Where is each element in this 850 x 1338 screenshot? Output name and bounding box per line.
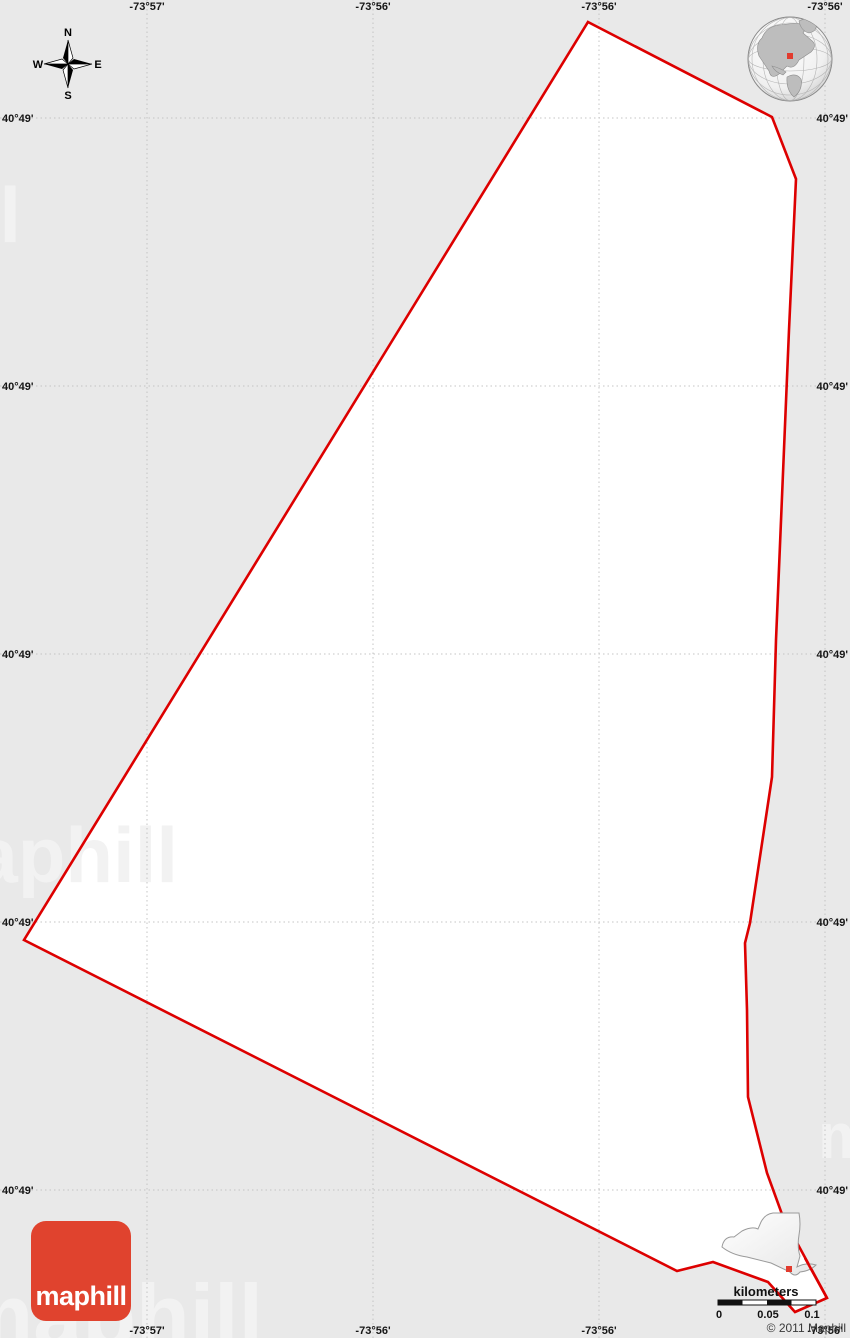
globe-location-marker (787, 53, 793, 59)
compass-west-label: W (33, 59, 44, 71)
watermark-text: maphill (818, 1100, 850, 1172)
longitude-label-bottom: -73°56' (355, 1325, 391, 1337)
scale-bar-segment (767, 1300, 792, 1305)
compass-south-label: S (64, 90, 71, 102)
latitude-label-right: 40°49' (817, 381, 849, 393)
watermark-text: maphill (0, 811, 178, 899)
latitude-label-left: 40°49' (2, 649, 34, 661)
scale-tick: 0.1 (804, 1309, 819, 1321)
watermark-text: maphill (0, 171, 21, 259)
compass-rose: N S W E (33, 27, 102, 102)
region-area-fill (24, 22, 827, 1312)
copyright-text: © 2011 Maphill (767, 1321, 846, 1335)
latitude-label-left: 40°49' (2, 1185, 34, 1197)
latitude-label-right: 40°49' (817, 917, 849, 929)
longitude-label-top: -73°56' (807, 1, 843, 13)
longitude-label-bottom: -73°56' (581, 1325, 617, 1337)
latitude-label-right: 40°49' (817, 649, 849, 661)
compass-east-label: E (94, 59, 101, 71)
inset-location-marker (786, 1266, 792, 1272)
latitude-label-right: 40°49' (817, 1185, 849, 1197)
locator-globe (748, 17, 832, 101)
scale-bar-segment (718, 1300, 743, 1305)
map-canvas: maphill maphill maphill maphill kilomete… (0, 0, 850, 1338)
scale-tick: 0.05 (757, 1309, 778, 1321)
longitude-label-top: -73°57' (129, 1, 165, 13)
latitude-label-left: 40°49' (2, 917, 34, 929)
latitude-label-right: 40°49' (817, 113, 849, 125)
maphill-logo-text: maphill (35, 1281, 126, 1312)
longitude-label-top: -73°56' (581, 1, 617, 13)
longitude-label-bottom: -73°57' (129, 1325, 165, 1337)
compass-north-label: N (64, 27, 72, 39)
latitude-label-left: 40°49' (2, 113, 34, 125)
maphill-logo[interactable]: maphill (31, 1221, 131, 1321)
longitude-label-top: -73°56' (355, 1, 391, 13)
latitude-label-left: 40°49' (2, 381, 34, 393)
map-graphics: maphill maphill maphill maphill kilomete… (0, 0, 850, 1338)
scale-tick: 0 (716, 1309, 722, 1321)
scale-bar-title: kilometers (733, 1284, 798, 1299)
